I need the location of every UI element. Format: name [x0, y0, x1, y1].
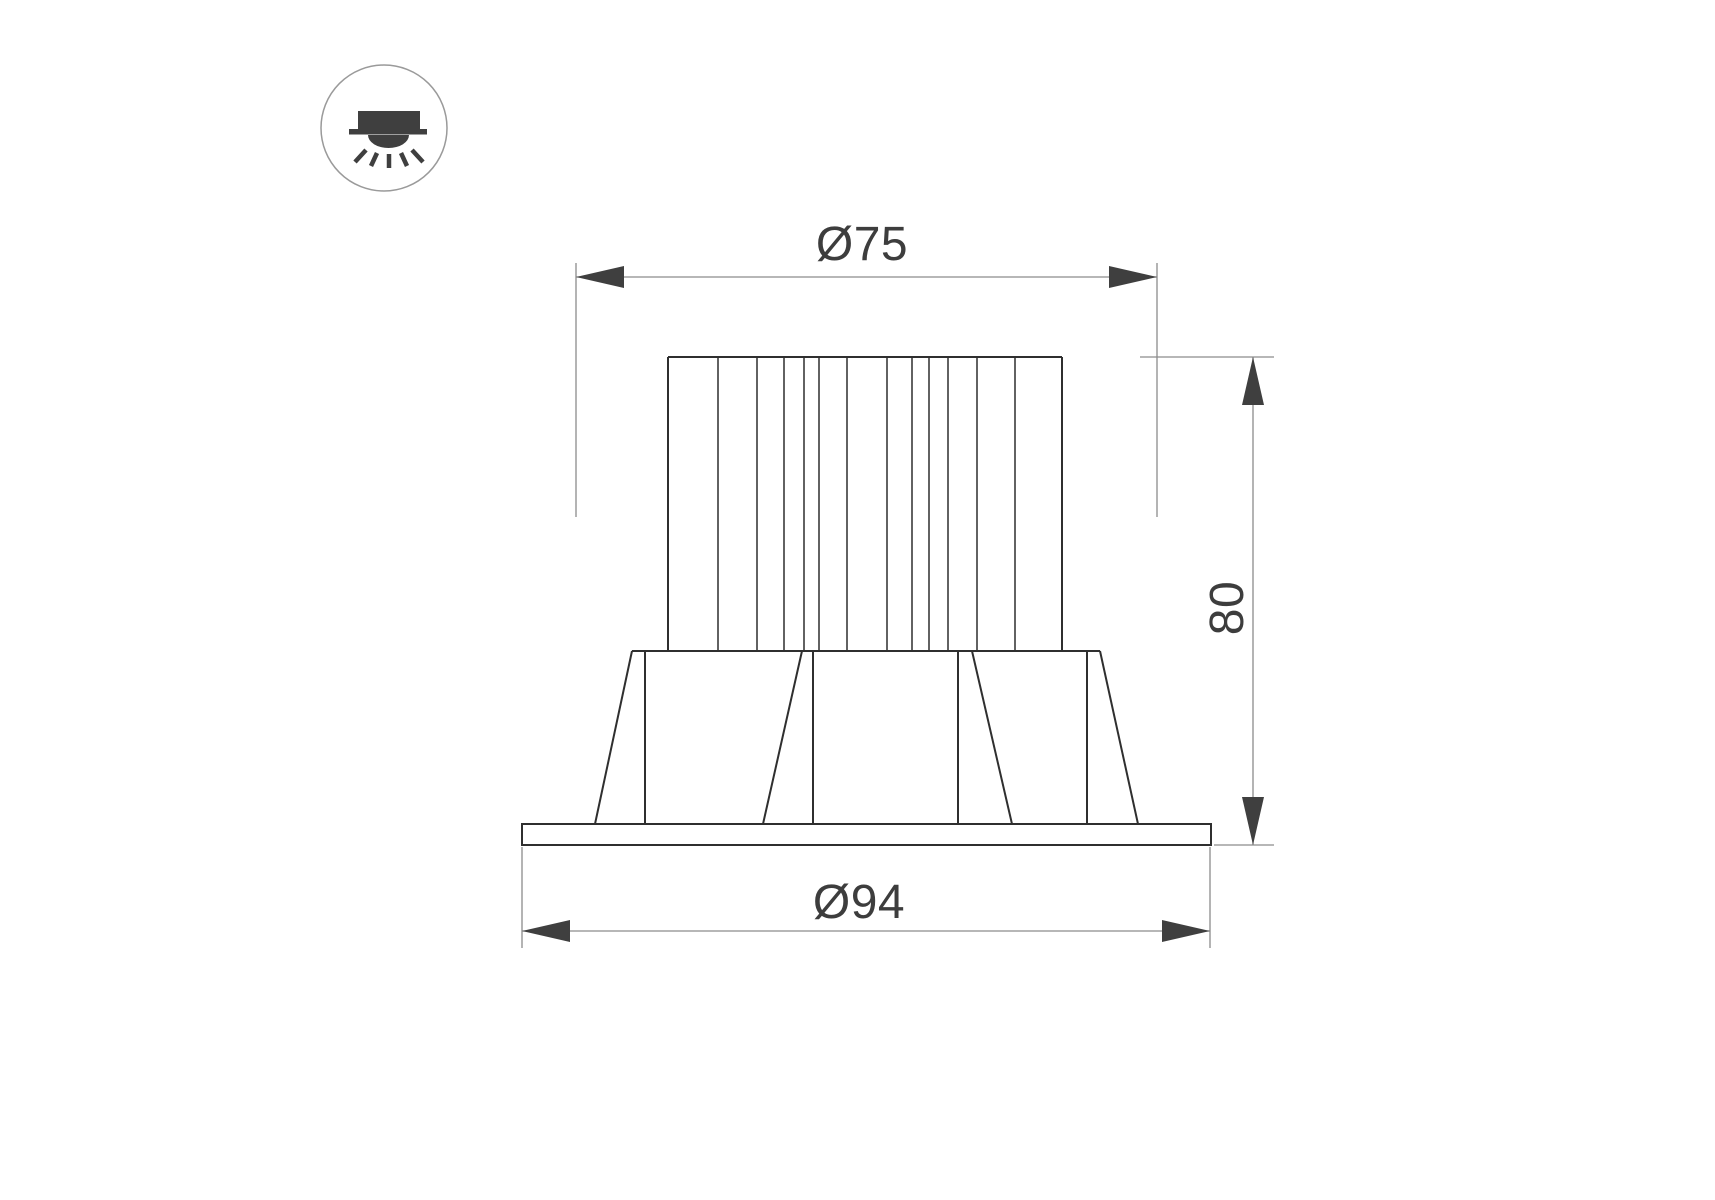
dimension-top-diameter: Ø75 [576, 218, 1157, 517]
dimension-flange-diameter: Ø94 [522, 847, 1210, 948]
heatsink [668, 357, 1062, 651]
recessed-downlight-icon [321, 65, 447, 191]
arrow-up-icon [1242, 357, 1264, 405]
arrow-left-icon [522, 920, 570, 942]
dimension-height: 80 [1140, 357, 1274, 845]
heatsink-fins [718, 357, 1015, 651]
trim-flange [522, 824, 1211, 845]
dimension-label-height: 80 [1201, 581, 1254, 635]
luminaire-outline [522, 357, 1211, 845]
icon-ceiling-line [349, 129, 427, 135]
arrow-right-icon [1109, 266, 1157, 288]
housing-body [595, 651, 1138, 824]
drawing-page: Ø75 80 Ø94 [0, 0, 1715, 1200]
arrow-right-icon [1162, 920, 1210, 942]
arrow-left-icon [576, 266, 624, 288]
dimension-drawing: Ø75 80 Ø94 [0, 0, 1715, 1200]
dimension-label-top-diameter: Ø75 [816, 218, 908, 271]
dimension-label-flange-diameter: Ø94 [813, 876, 905, 929]
icon-lamp-housing [358, 111, 420, 130]
arrow-down-icon [1242, 797, 1264, 845]
